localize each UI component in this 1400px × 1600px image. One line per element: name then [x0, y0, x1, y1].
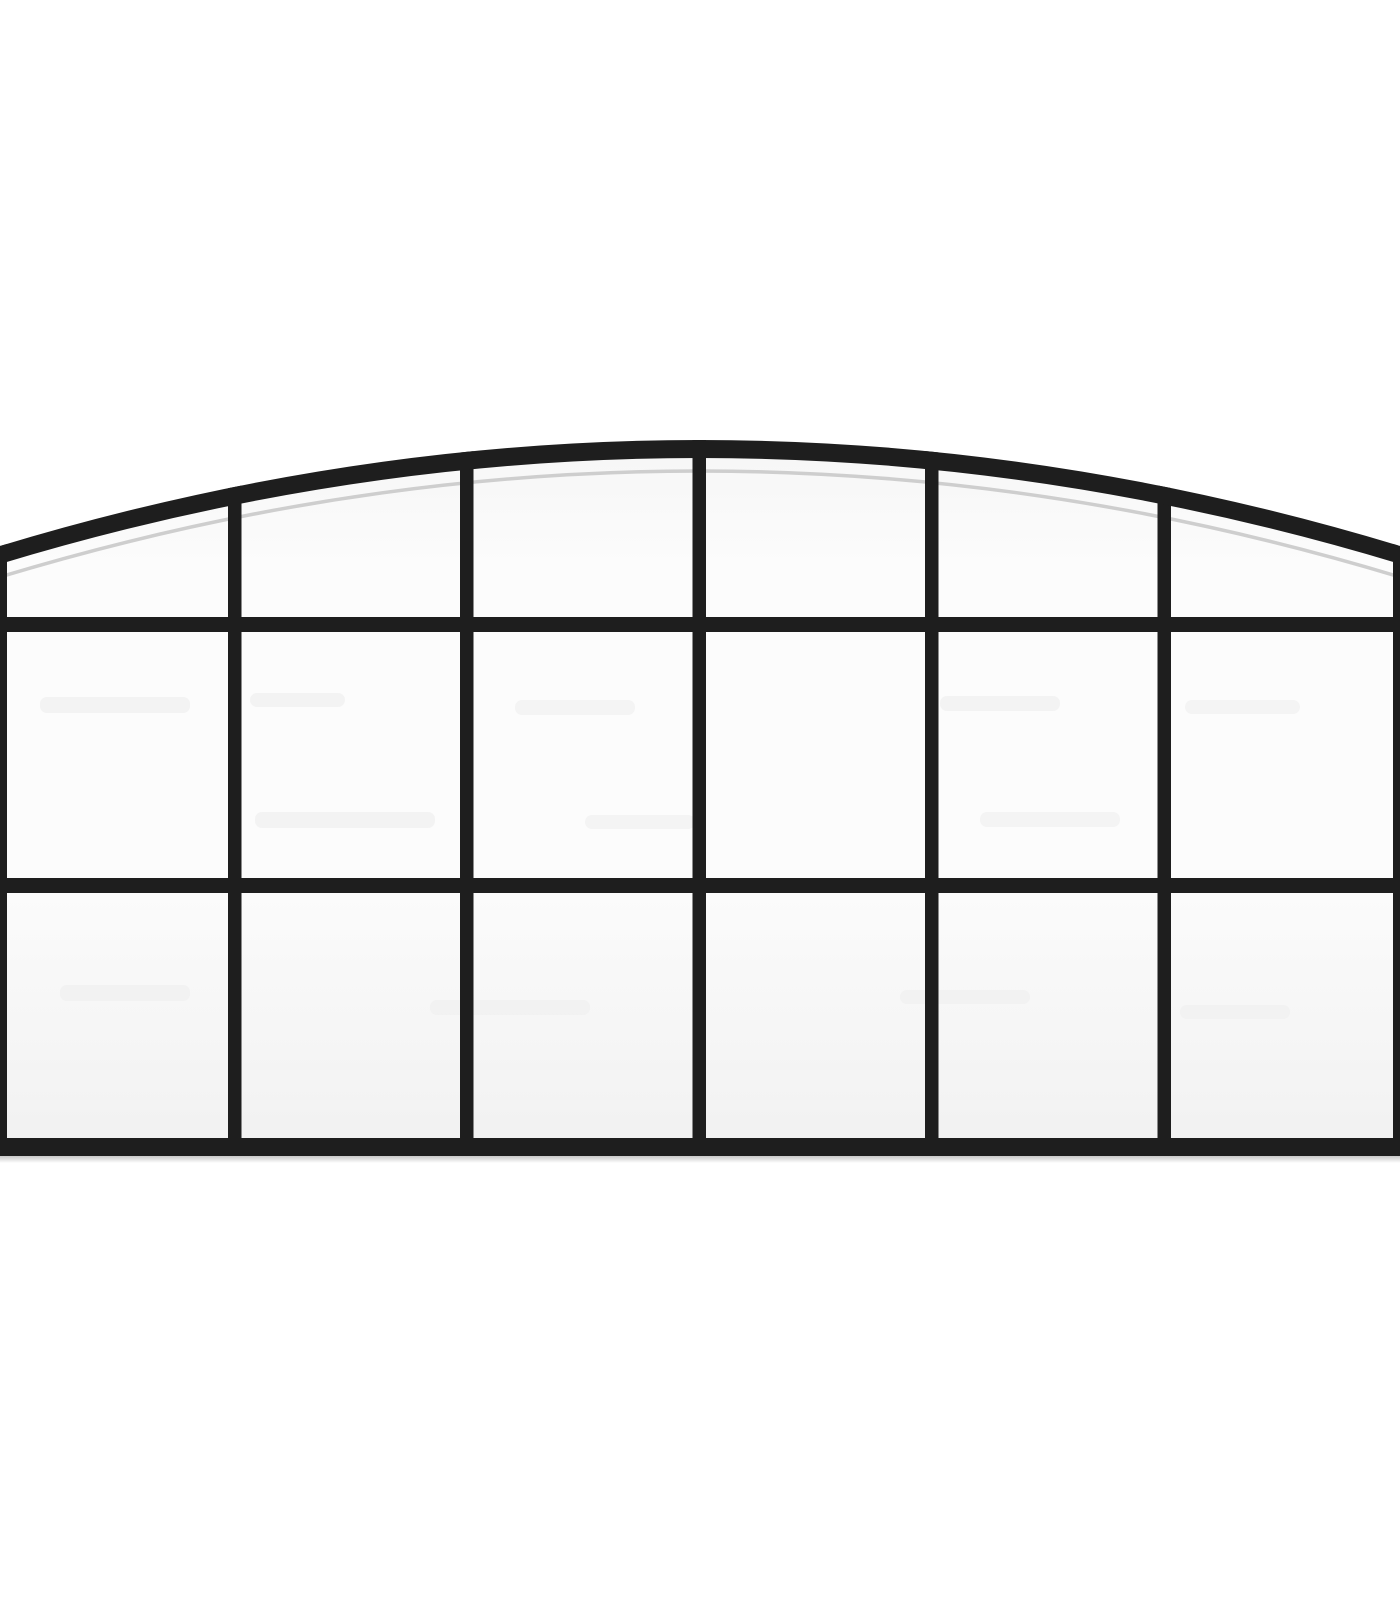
reflection-smudge [940, 696, 1060, 711]
product-image [0, 0, 1400, 1600]
right-stile [1393, 500, 1400, 1156]
reflection-smudge [1180, 1005, 1290, 1019]
mullion-2 [460, 420, 474, 1156]
bottom-rail [0, 1138, 1400, 1156]
horizontal-rail-1 [0, 617, 1400, 632]
reflection-smudge [430, 1000, 590, 1015]
left-stile [0, 500, 7, 1156]
reflection-smudge [40, 697, 190, 713]
mullion-5 [1158, 420, 1172, 1156]
mullion-4 [925, 420, 939, 1156]
reflection-smudge [980, 812, 1120, 827]
reflection-smudge [60, 985, 190, 1001]
reflection-smudge [255, 812, 435, 828]
reflection-smudge [900, 990, 1030, 1004]
window-mirror-scene [0, 0, 1400, 1600]
bottom-edge-shadow [0, 1156, 1400, 1163]
reflection-smudge [1185, 700, 1300, 714]
reflection-smudge [250, 693, 345, 707]
reflection-smudge [585, 815, 695, 829]
mullion-1 [228, 420, 242, 1156]
mullion-3 [693, 420, 707, 1156]
horizontal-rail-2 [0, 878, 1400, 893]
reflection-smudge [515, 700, 635, 715]
